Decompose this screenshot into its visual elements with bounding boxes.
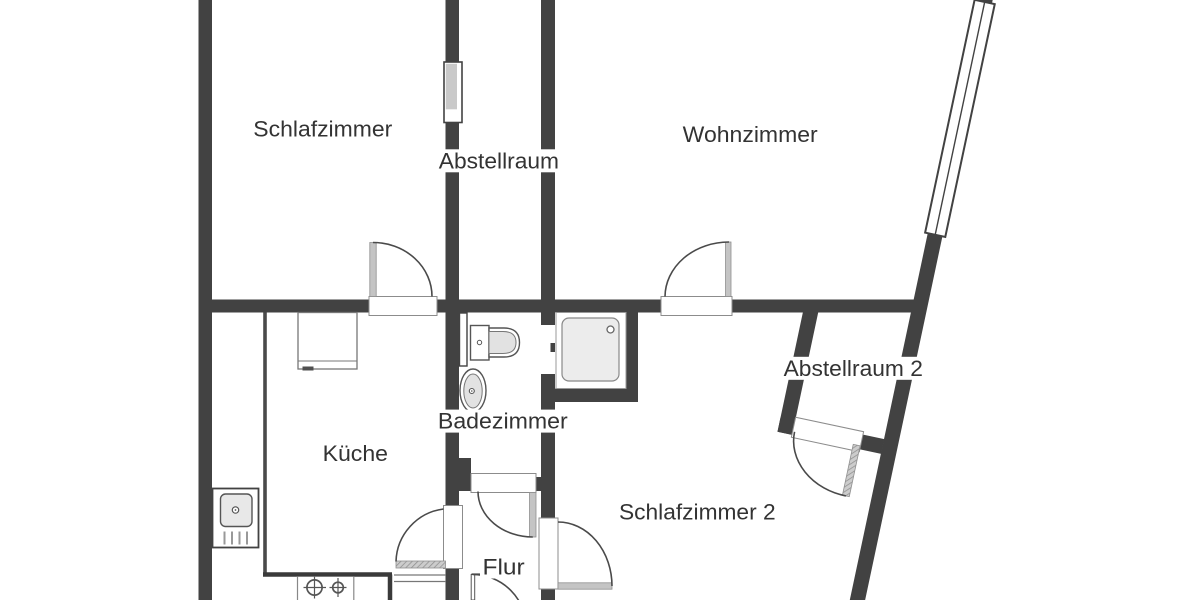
- svg-text:Schlafzimmer: Schlafzimmer: [253, 116, 393, 141]
- svg-text:Abstellraum 2: Abstellraum 2: [784, 356, 923, 381]
- svg-text:Flur: Flur: [483, 555, 526, 580]
- svg-text:Schlafzimmer 2: Schlafzimmer 2: [619, 499, 776, 524]
- svg-text:Abstellraum: Abstellraum: [439, 148, 559, 173]
- svg-text:Wohnzimmer: Wohnzimmer: [683, 122, 819, 147]
- svg-text:Badezimmer: Badezimmer: [438, 409, 568, 434]
- svg-text:Küche: Küche: [323, 441, 388, 466]
